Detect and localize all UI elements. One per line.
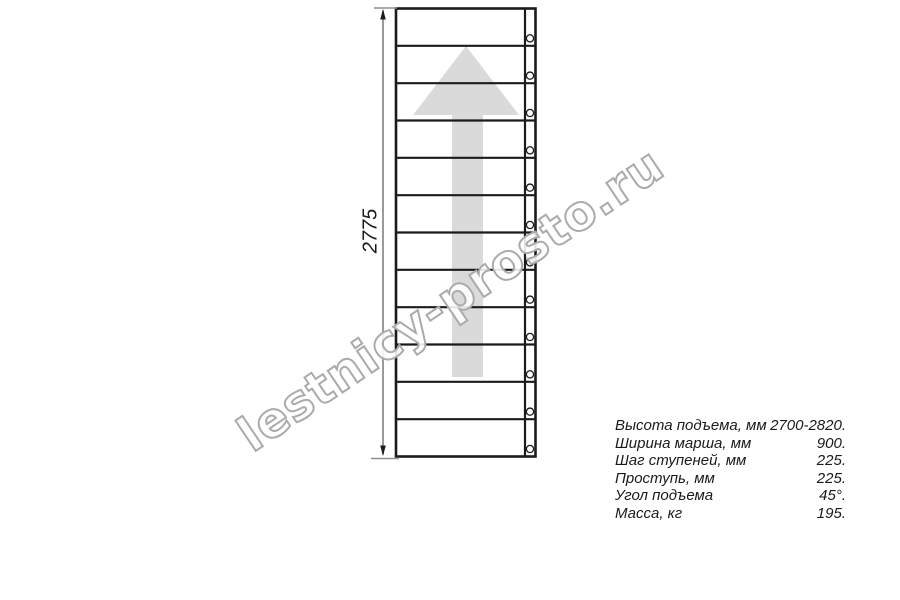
bolt-circle-icon <box>526 408 533 415</box>
spec-label: Масса, кг <box>615 505 682 523</box>
spec-row: Угол подъема 45°. <box>615 487 846 505</box>
bolt-circle-icon <box>526 333 533 340</box>
spec-row: Шаг ступеней, мм 225. <box>615 452 846 470</box>
spec-label: Ширина марша, мм <box>615 435 751 453</box>
spec-label: Угол подъема <box>615 487 713 505</box>
watermark: lestnicy-prosto.ru <box>228 137 674 463</box>
spec-row: Проступь, мм 225. <box>615 470 846 488</box>
bolt-circle-icon <box>526 445 533 452</box>
blueprint-canvas: 2775 lestnicy-prosto.ru Высота подъема, … <box>0 0 900 600</box>
bolt-circle-icon <box>526 72 533 79</box>
bolt-circle-icon <box>526 296 533 303</box>
specs-table: Высота подъема, мм 2700-2820. Ширина мар… <box>615 417 846 522</box>
spec-row: Высота подъема, мм 2700-2820. <box>615 417 846 435</box>
bolt-circle-icon <box>526 371 533 378</box>
spec-value: 195. <box>817 505 846 523</box>
spec-value: 900. <box>817 435 846 453</box>
dimension-arrowhead-top <box>380 9 386 20</box>
bolt-circle-icon <box>526 35 533 42</box>
spec-row: Масса, кг 195. <box>615 505 846 523</box>
spec-label: Шаг ступеней, мм <box>615 452 746 470</box>
spec-label: Высота подъема, мм <box>615 417 767 435</box>
spec-value: 225. <box>817 470 846 488</box>
spec-label: Проступь, мм <box>615 470 715 488</box>
dimension-label: 2775 <box>360 208 382 254</box>
bolt-circle-icon <box>526 184 533 191</box>
bolt-circle-icon <box>526 109 533 116</box>
dimension-arrowhead-bottom <box>380 446 386 457</box>
spec-row: Ширина марша, мм 900. <box>615 435 846 453</box>
spec-value: 225. <box>817 452 846 470</box>
spec-value: 2700-2820. <box>770 417 846 435</box>
bolt-circle-icon <box>526 147 533 154</box>
spec-value: 45°. <box>819 487 846 505</box>
